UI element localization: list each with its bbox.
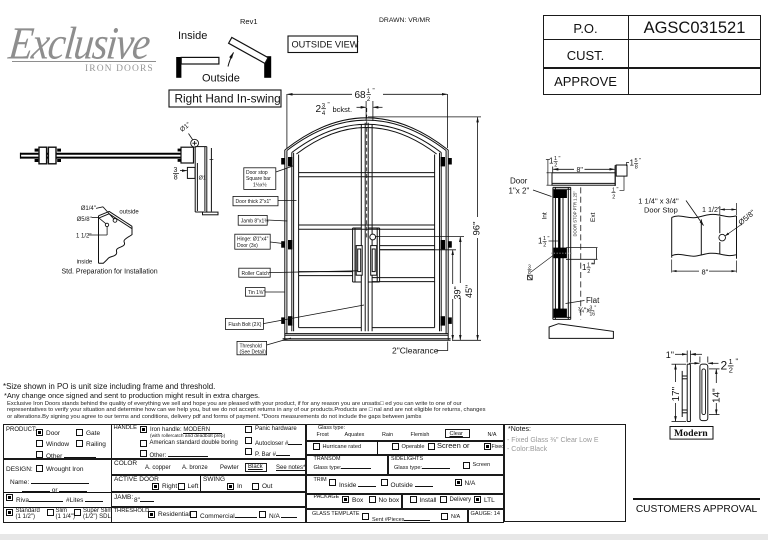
svg-text:14": 14" — [712, 388, 723, 403]
svg-text:Roller Catch: Roller Catch — [242, 271, 270, 277]
svg-text:Jamb 8"x1¾: Jamb 8"x1¾ — [241, 218, 269, 224]
svg-text:16: 16 — [590, 312, 596, 318]
svg-text:1": 1" — [666, 350, 674, 360]
svg-text:45": 45" — [464, 285, 474, 298]
svg-text:1 1/2": 1 1/2" — [702, 205, 721, 214]
svg-text:1"x 2": 1"x 2" — [509, 187, 530, 196]
svg-text:2: 2 — [729, 366, 733, 375]
svg-text:Tin 1⅝": Tin 1⅝" — [248, 290, 265, 296]
svg-text:": " — [592, 263, 594, 269]
svg-text:1 1/2": 1 1/2" — [76, 233, 91, 239]
svg-text:Rev1: Rev1 — [240, 17, 258, 26]
svg-text:DOOR STOP PTR 1.25": DOOR STOP PTR 1.25" — [573, 191, 578, 237]
svg-text:2"Clearance: 2"Clearance — [392, 346, 439, 356]
svg-text:8: 8 — [174, 175, 178, 182]
svg-text:Std. Preparation for Installat: Std. Preparation for Installation — [62, 268, 158, 275]
svg-text:96": 96" — [472, 222, 483, 236]
svg-text:1½x½: 1½x½ — [253, 182, 267, 189]
svg-text:Ø5/8": Ø5/8" — [77, 217, 92, 223]
svg-text:2: 2 — [367, 97, 371, 103]
svg-text:2: 2 — [721, 359, 728, 373]
svg-text:Door stop: Door stop — [246, 170, 268, 176]
svg-text:¾"x: ¾"x — [578, 308, 590, 315]
svg-text:outside: outside — [119, 210, 139, 216]
svg-text:Int: Int — [542, 212, 549, 219]
svg-text:Modern: Modern — [674, 428, 708, 439]
svg-text:Square bar: Square bar — [246, 176, 271, 182]
svg-text:inside: inside — [77, 259, 93, 265]
svg-text:17": 17" — [671, 386, 682, 401]
svg-text:Door thick 2"x1": Door thick 2"x1" — [236, 199, 272, 205]
svg-text:2: 2 — [543, 243, 546, 249]
svg-text:Right Hand In-swing: Right Hand In-swing — [175, 92, 281, 106]
svg-text:": " — [639, 158, 641, 164]
svg-text:Flat: Flat — [586, 296, 600, 305]
svg-text:Ø1": Ø1" — [179, 121, 193, 134]
svg-text:": " — [617, 187, 619, 193]
svg-text:2: 2 — [554, 163, 557, 169]
svg-text:": " — [559, 156, 561, 162]
svg-text:Door Stop: Door Stop — [644, 206, 678, 215]
svg-text:Ø1/4": Ø1/4" — [81, 206, 96, 212]
svg-text:Ø5/8": Ø5/8" — [737, 208, 758, 227]
svg-text:Flush Bolt (2X): Flush Bolt (2X) — [228, 322, 261, 328]
svg-text:": " — [373, 89, 375, 95]
svg-text:(See Detail): (See Detail) — [240, 349, 267, 355]
svg-text:68: 68 — [355, 90, 367, 101]
svg-text:Door: Door — [510, 177, 528, 186]
svg-text:2: 2 — [612, 194, 615, 200]
svg-text:4: 4 — [322, 111, 326, 117]
svg-text:": " — [328, 103, 330, 109]
svg-text:Ø1: Ø1 — [199, 176, 206, 182]
svg-text:2: 2 — [587, 269, 590, 275]
svg-text:Door (3x): Door (3x) — [237, 243, 258, 249]
svg-text:8": 8" — [577, 167, 584, 174]
svg-text:": " — [736, 357, 739, 366]
svg-text:bckst.: bckst. — [333, 105, 353, 114]
svg-text:Ext: Ext — [590, 212, 597, 222]
svg-text:DRAWN: VR/MR: DRAWN: VR/MR — [379, 17, 430, 24]
svg-text:Inside: Inside — [178, 30, 207, 42]
svg-text:8": 8" — [702, 267, 709, 276]
svg-text:1 1/4" x 3/4": 1 1/4" x 3/4" — [638, 197, 679, 206]
svg-text:3: 3 — [174, 167, 178, 174]
svg-text:39": 39" — [453, 286, 463, 299]
svg-text:2: 2 — [316, 104, 322, 115]
svg-text:OUTSIDE VIEW: OUTSIDE VIEW — [292, 40, 359, 50]
svg-text:8: 8 — [635, 165, 638, 171]
svg-text:Hinge: Ø1"x4": Hinge: Ø1"x4" — [237, 237, 269, 243]
svg-text:Outside: Outside — [202, 73, 240, 85]
svg-text:": " — [595, 306, 597, 312]
